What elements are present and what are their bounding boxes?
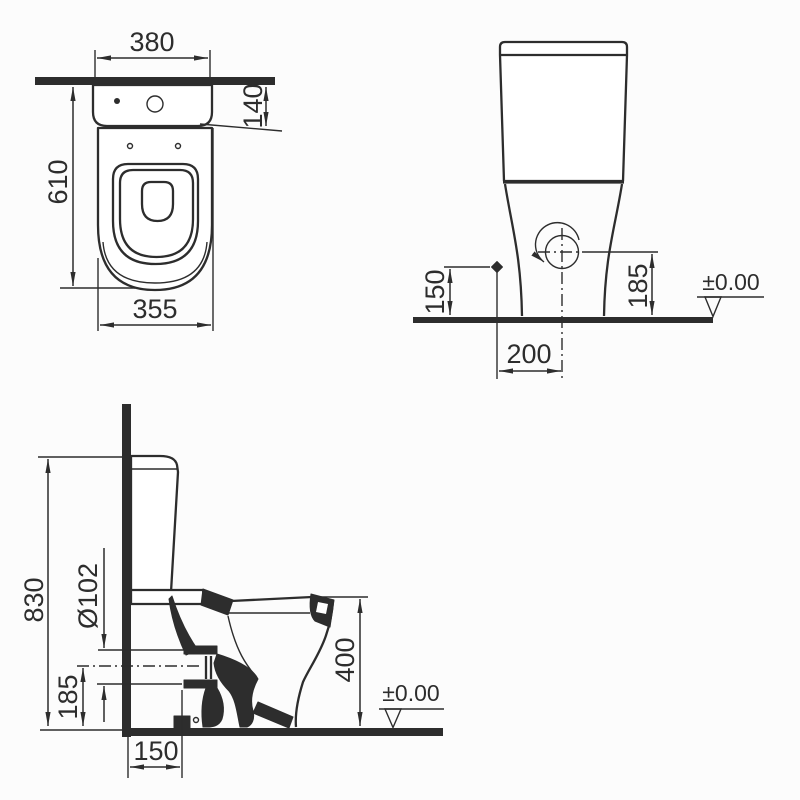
pedestal-right-edge — [604, 184, 622, 316]
dim-label-400: 400 — [330, 637, 360, 682]
dim-label-185-front: 185 — [623, 263, 653, 308]
cistern-side — [131, 456, 178, 592]
side-view: Ø102 185 830 400 ±0.00 150 — [19, 404, 444, 778]
seat-cover-nose — [201, 589, 233, 615]
bowl-outline-plan — [98, 128, 212, 290]
pedestal-left-edge — [505, 184, 522, 316]
water-inlet-icon — [492, 262, 503, 273]
dim-label-o102: Ø102 — [73, 563, 103, 629]
rim-section-notch — [316, 602, 328, 614]
trap-section-lower — [202, 688, 223, 727]
dim-tank-width: 380 — [97, 27, 208, 58]
datum-level-icon-side: ±0.00 — [379, 680, 444, 728]
seat-slab-side — [131, 590, 205, 604]
dim-label-185-side: 185 — [53, 674, 83, 719]
dim-outlet-center-height-side: 185 — [53, 668, 83, 726]
dim-label-150-side: 150 — [133, 736, 178, 766]
cistern-plan — [93, 85, 212, 126]
dim-outlet-offset: 200 — [497, 323, 561, 379]
datum-label-front: ±0.00 — [702, 269, 759, 295]
front-view: 150 185 ±0.00 200 — [413, 42, 764, 379]
dim-label-380: 380 — [129, 27, 174, 57]
datum-label-side: ±0.00 — [382, 680, 439, 706]
rim-top-line — [231, 597, 312, 601]
dim-total-height: 830 — [19, 459, 49, 726]
floor-line-front — [413, 317, 713, 323]
wall-section — [122, 404, 131, 737]
toilet-dimension-drawing: 380 140 610 355 — [0, 0, 800, 800]
plan-view: 380 140 610 355 — [35, 27, 282, 331]
dim-inlet-height: 150 — [420, 267, 490, 315]
dim-label-200: 200 — [506, 339, 551, 369]
inlet-hole-icon — [114, 98, 120, 104]
datum-triangle — [385, 709, 401, 728]
floor-section — [122, 728, 443, 736]
dim-label-140: 140 — [238, 83, 268, 128]
cistern-front — [500, 42, 627, 181]
datum-level-icon-front: ±0.00 — [697, 269, 764, 317]
datum-triangle — [705, 297, 721, 317]
dim-label-830: 830 — [19, 577, 49, 622]
fixing-screw-hole — [194, 718, 199, 723]
dim-label-150-front: 150 — [420, 269, 450, 314]
dim-outlet-center-height-front: 185 — [623, 254, 653, 315]
dim-label-355: 355 — [132, 294, 177, 324]
outlet-spigot-section — [184, 646, 217, 688]
drawing-canvas: 380 140 610 355 — [0, 0, 800, 800]
dim-label-610: 610 — [43, 159, 73, 204]
base-strut-section — [253, 702, 293, 728]
